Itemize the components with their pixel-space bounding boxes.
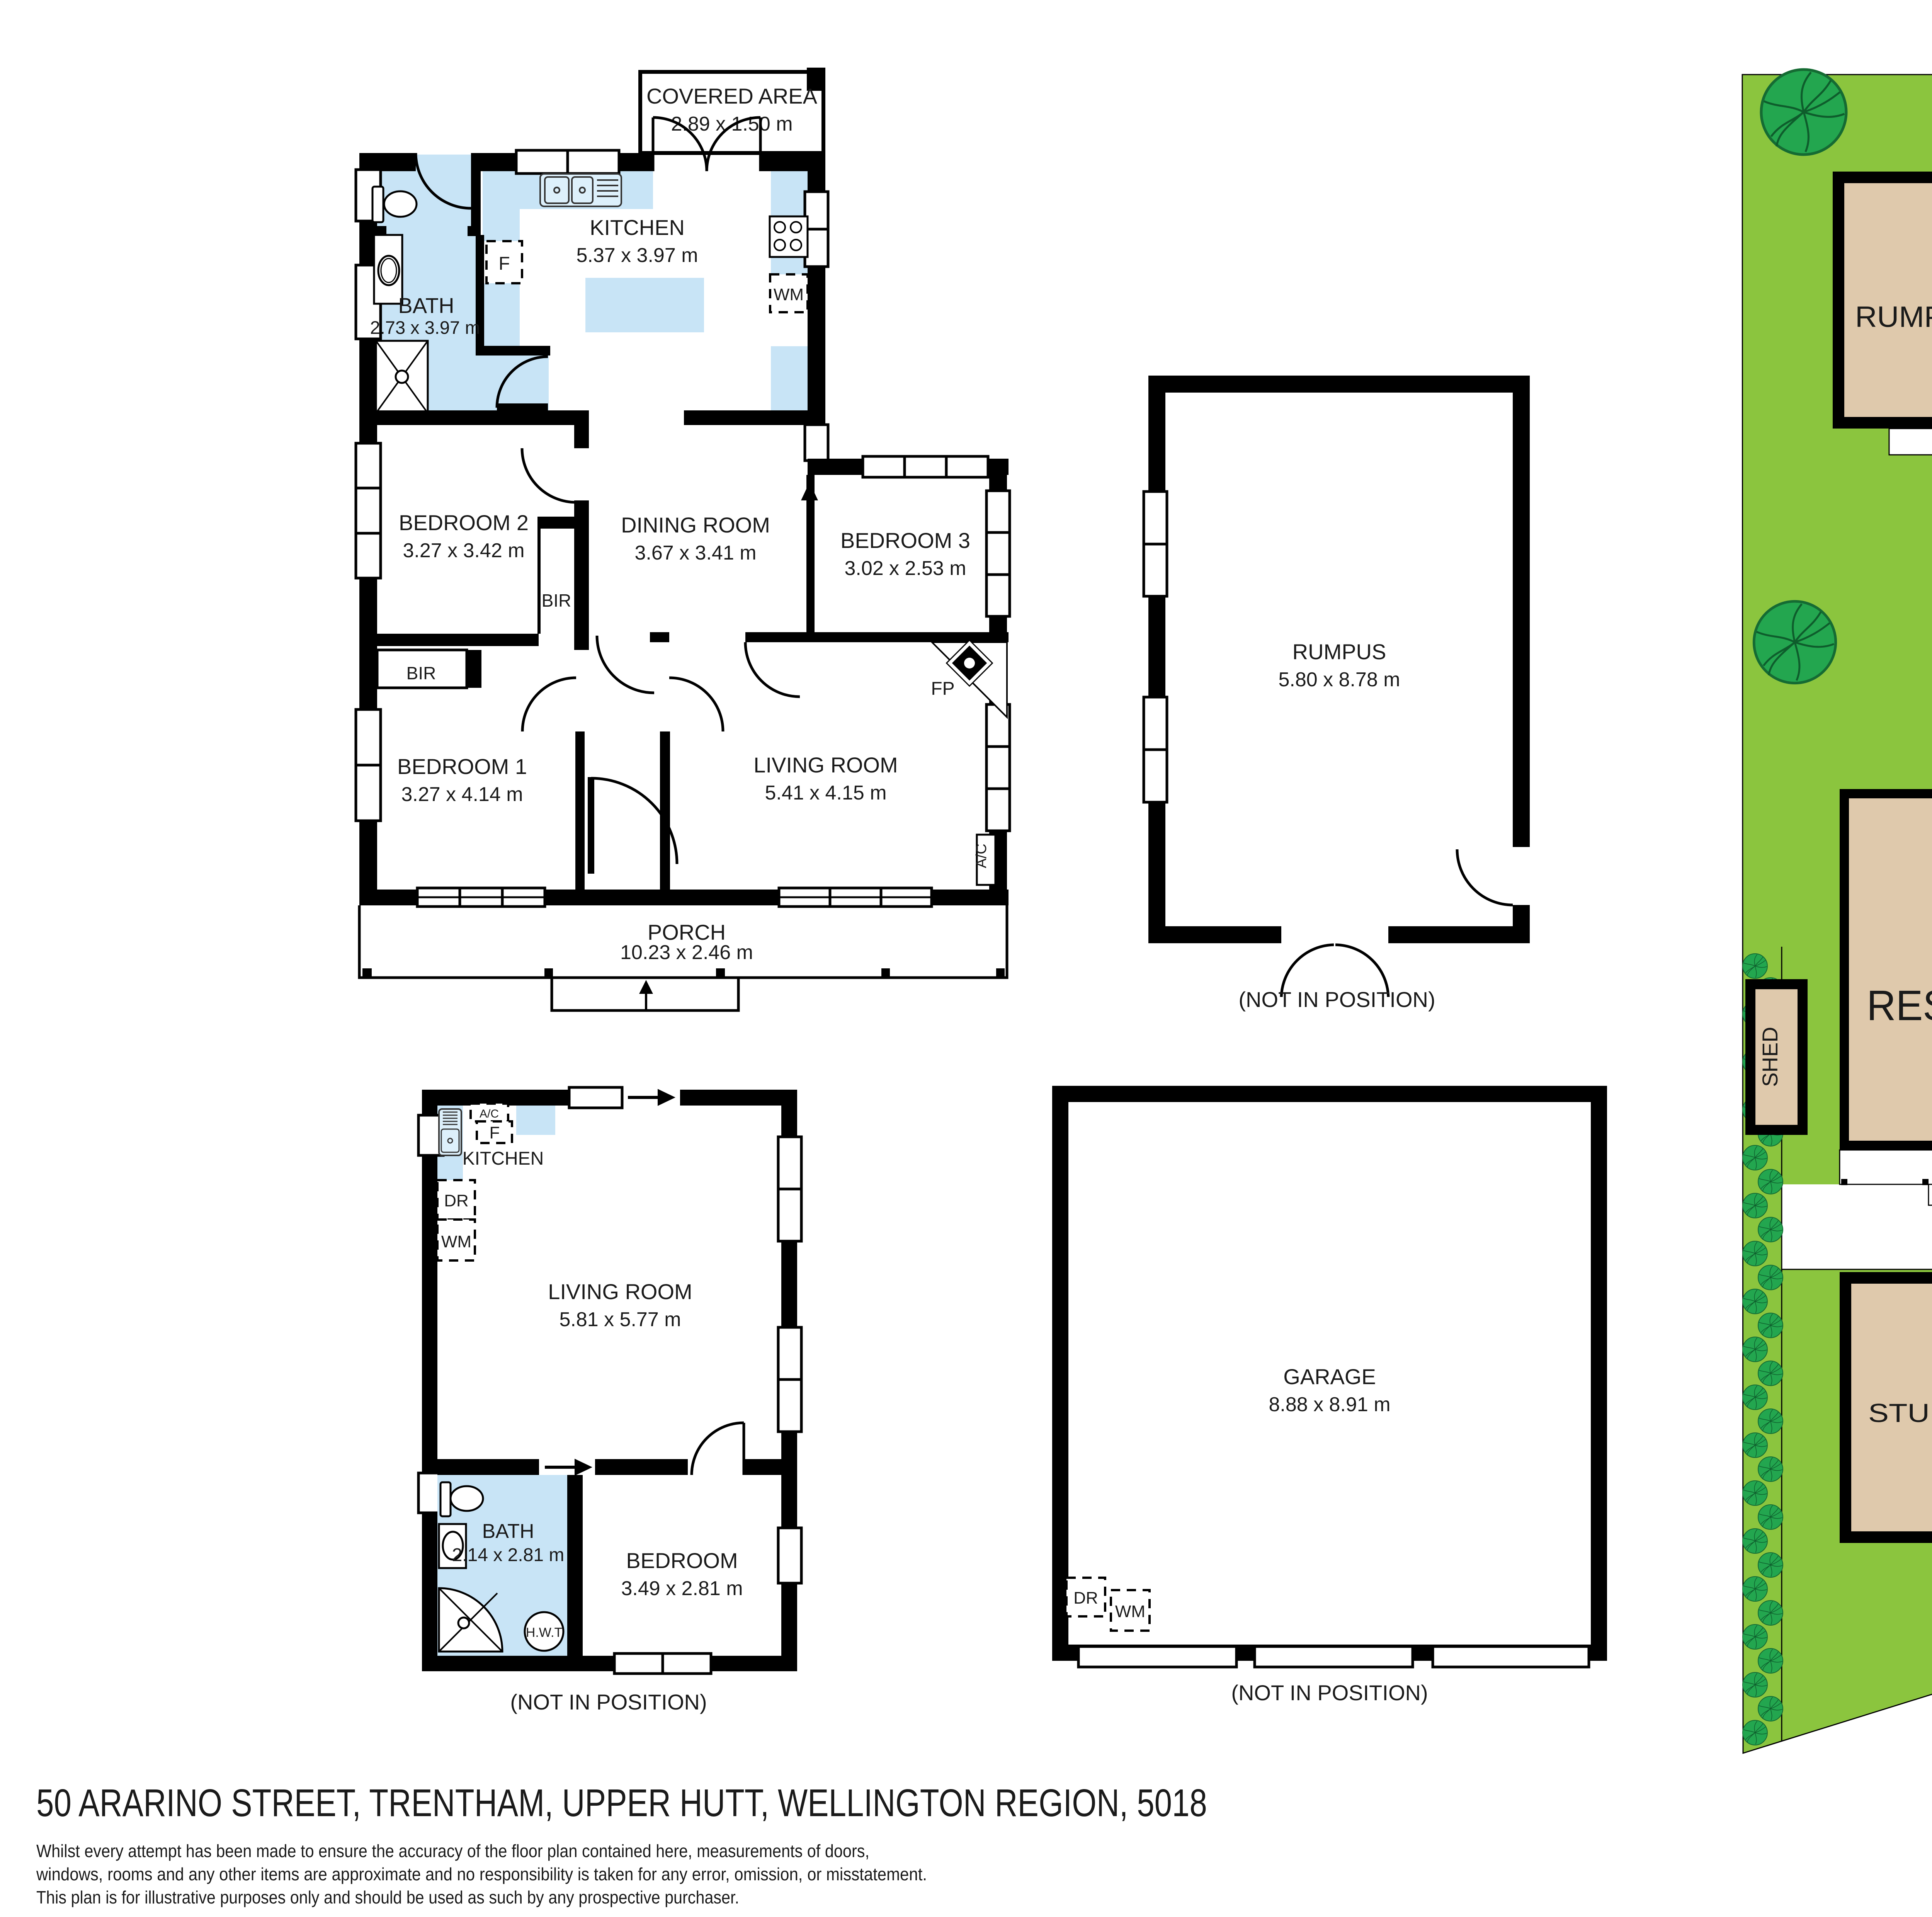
- svg-text:3.27 x 4.14 m: 3.27 x 4.14 m: [401, 783, 523, 806]
- svg-text:2.73 x 3.97 m: 2.73 x 3.97 m: [370, 317, 480, 338]
- svg-text:BEDROOM 2: BEDROOM 2: [399, 510, 529, 535]
- svg-text:3.02 x 2.53 m: 3.02 x 2.53 m: [844, 557, 966, 580]
- svg-text:50 ARARINO STREET, TRENTHAM, U: 50 ARARINO STREET, TRENTHAM, UPPER HUTT,…: [36, 1781, 1207, 1825]
- svg-text:5.37 x 3.97 m: 5.37 x 3.97 m: [576, 244, 698, 267]
- svg-text:WM: WM: [1115, 1602, 1145, 1621]
- svg-text:BATH: BATH: [482, 1520, 534, 1543]
- svg-text:SHED: SHED: [1758, 1027, 1782, 1087]
- svg-text:F: F: [498, 253, 510, 274]
- svg-text:3.27 x 3.42 m: 3.27 x 3.42 m: [403, 539, 524, 562]
- svg-text:RUMPUS: RUMPUS: [1293, 640, 1386, 664]
- svg-text:RUMPUS: RUMPUS: [1855, 301, 1932, 333]
- svg-text:COVERED AREA: COVERED AREA: [646, 84, 818, 108]
- svg-text:BIR: BIR: [542, 590, 571, 611]
- svg-text:(NOT IN POSITION): (NOT IN POSITION): [1231, 1681, 1428, 1705]
- svg-text:LIVING ROOM: LIVING ROOM: [548, 1279, 692, 1304]
- svg-text:F: F: [490, 1123, 500, 1142]
- svg-text:3.49 x 2.81 m: 3.49 x 2.81 m: [621, 1577, 743, 1600]
- svg-text:5.41 x 4.15 m: 5.41 x 4.15 m: [765, 782, 886, 804]
- svg-text:STUDIO: STUDIO: [1868, 1398, 1932, 1428]
- svg-text:(NOT IN POSITION): (NOT IN POSITION): [1238, 987, 1435, 1012]
- svg-text:FP: FP: [931, 679, 954, 699]
- svg-text:Whilst every attempt has been: Whilst every attempt has been made to en…: [36, 1841, 869, 1861]
- svg-text:DINING ROOM: DINING ROOM: [621, 513, 770, 537]
- svg-text:8.88 x 8.91 m: 8.88 x 8.91 m: [1269, 1393, 1390, 1416]
- svg-text:BEDROOM 3: BEDROOM 3: [840, 528, 970, 553]
- svg-text:KITCHEN: KITCHEN: [590, 215, 685, 240]
- svg-text:(NOT IN POSITION): (NOT IN POSITION): [510, 1690, 707, 1714]
- svg-text:5.81 x 5.77 m: 5.81 x 5.77 m: [559, 1308, 681, 1331]
- svg-text:3.67 x 3.41 m: 3.67 x 3.41 m: [634, 542, 756, 564]
- svg-text:RESIDENCE: RESIDENCE: [1867, 982, 1932, 1029]
- svg-text:DR: DR: [444, 1191, 469, 1210]
- svg-text:PORCH: PORCH: [648, 920, 726, 944]
- svg-text:BIR: BIR: [406, 663, 436, 683]
- svg-text:BATH: BATH: [398, 293, 454, 318]
- svg-text:WM: WM: [441, 1232, 471, 1251]
- svg-text:GARAGE: GARAGE: [1283, 1364, 1376, 1389]
- svg-text:A/C: A/C: [973, 844, 990, 868]
- svg-text:DR: DR: [1073, 1589, 1098, 1607]
- svg-text:BEDROOM 1: BEDROOM 1: [397, 754, 527, 779]
- svg-text:A/C: A/C: [480, 1107, 499, 1120]
- svg-text:5.80 x 8.78 m: 5.80 x 8.78 m: [1278, 668, 1400, 691]
- svg-text:LIVING ROOM: LIVING ROOM: [753, 753, 898, 777]
- svg-text:10.23 x 2.46 m: 10.23 x 2.46 m: [620, 941, 753, 964]
- svg-text:2.14 x 2.81 m: 2.14 x 2.81 m: [452, 1545, 565, 1565]
- svg-text:KITCHEN: KITCHEN: [463, 1148, 544, 1169]
- svg-text:windows, rooms and any other i: windows, rooms and any other items are a…: [36, 1864, 927, 1884]
- svg-text:BEDROOM: BEDROOM: [626, 1548, 738, 1573]
- svg-text:This plan is for illustrative: This plan is for illustrative purposes o…: [36, 1887, 739, 1907]
- svg-text:WM: WM: [774, 285, 804, 304]
- svg-text:H.W.T: H.W.T: [526, 1625, 562, 1640]
